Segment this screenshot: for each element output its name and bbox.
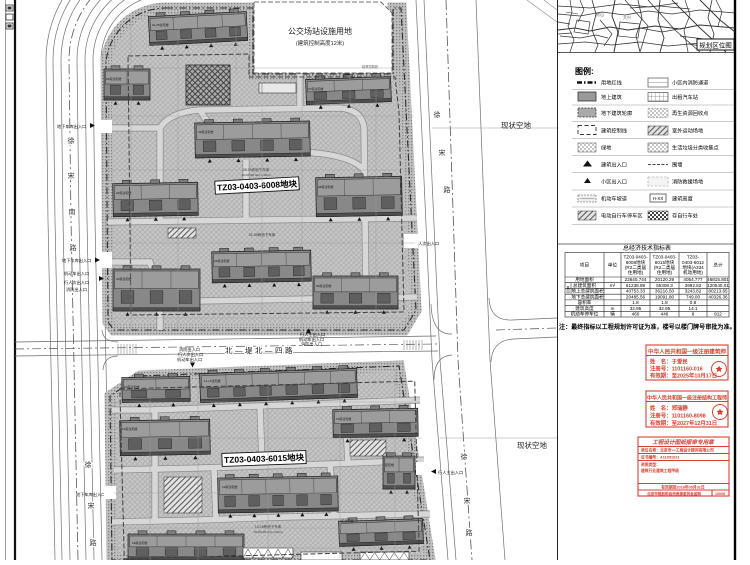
- svg-text:18栋住宅楼: 18栋住宅楼: [132, 540, 147, 545]
- svg-text:地上建筑: 地上建筑: [601, 93, 623, 101]
- svg-text:公交场站设施用地: 公交场站设施用地: [288, 26, 352, 36]
- svg-text:11-12住宅楼: 11-12住宅楼: [204, 378, 220, 383]
- svg-text:有效期：至2027年12月31日: 有效期：至2027年12月31日: [650, 419, 717, 427]
- svg-text:姓 名：于爱民: 姓 名：于爱民: [650, 358, 688, 366]
- svg-text:机动车坡道: 机动车坡道: [601, 195, 627, 203]
- svg-text:02栋住宅楼: 02栋住宅楼: [116, 190, 131, 195]
- svg-text:机动车停车位: 机动车停车位: [571, 311, 599, 318]
- svg-text:04栋住宅楼: 04栋住宅楼: [214, 258, 229, 263]
- svg-text:路: 路: [70, 243, 77, 252]
- svg-text:路: 路: [90, 538, 97, 547]
- svg-text:±0.00=35.3m(-1.00m): ±0.00=35.3m(-1.00m): [242, 173, 271, 177]
- svg-text:19091.80: 19091.80: [655, 294, 675, 299]
- svg-text:15栋住宅楼: 15栋住宅楼: [336, 416, 351, 421]
- svg-text:有效期至2018年05月31日: 有效期至2018年05月31日: [661, 485, 705, 490]
- svg-text:13栋住宅楼: 13栋住宅楼: [122, 426, 137, 431]
- svg-text:注：最终指标以工程规划许可证为准，楼号以楼门牌号审批为准。: 注：最终指标以工程规划许可证为准，楼号以楼门牌号审批为准。: [559, 323, 736, 331]
- svg-text:现状空地: 现状空地: [501, 120, 531, 130]
- svg-text:总计: 总计: [713, 261, 723, 268]
- svg-text:路: 路: [466, 528, 473, 537]
- svg-text:住用地): 住用地): [628, 269, 644, 276]
- svg-text:中华人民共和国一级注册结构工程师: 中华人民共和国一级注册结构工程师: [647, 395, 727, 402]
- svg-text:消防出入口: 消防出入口: [301, 341, 322, 348]
- svg-text:22640.744: 22640.744: [625, 277, 647, 282]
- svg-text:机动用地): 机动用地): [683, 269, 703, 276]
- svg-text:0.8: 0.8: [690, 300, 697, 305]
- svg-text:注册号：1101160-016: 注册号：1101160-016: [650, 365, 703, 373]
- svg-text:地下建筑轮廓: 地下建筑轮廓: [601, 109, 632, 117]
- svg-text:4054.777: 4054.777: [683, 277, 703, 282]
- svg-text:北—堤北—四路: 北—堤北—四路: [225, 345, 295, 355]
- svg-text:912: 912: [714, 312, 722, 317]
- svg-text:55308.3: 55308.3: [656, 283, 673, 288]
- svg-text:(建筑控制高度12米): (建筑控制高度12米): [296, 39, 344, 47]
- svg-text:住用地): 住用地): [657, 269, 673, 276]
- svg-text:32.95: 32.95: [630, 306, 642, 311]
- svg-text:宋: 宋: [88, 501, 95, 510]
- svg-text:宋: 宋: [464, 496, 471, 505]
- svg-text:单位: 单位: [608, 261, 618, 268]
- svg-text:行人主出入口: 行人主出入口: [438, 469, 463, 476]
- svg-text:小区出入口: 小区出入口: [601, 178, 627, 186]
- svg-text:446: 446: [661, 312, 669, 317]
- svg-text:建筑控制线: 建筑控制线: [362, 64, 379, 69]
- svg-text:中华人民共和国一级注册建筑师: 中华人民共和国一级注册建筑师: [648, 348, 727, 356]
- svg-text:40753.33: 40753.33: [626, 289, 646, 294]
- svg-text:小区内消防通道: 小区内消防通道: [672, 79, 708, 87]
- svg-text:20485.56: 20485.56: [626, 294, 646, 299]
- svg-text:6: 6: [692, 312, 695, 317]
- svg-text:证书编号：A11051023: 证书编号：A11051023: [641, 455, 679, 460]
- svg-text:南: 南: [69, 207, 76, 216]
- svg-text:01-05住宅楼: 01-05住宅楼: [152, 22, 169, 27]
- svg-text:大兴: 大兴: [623, 14, 631, 20]
- svg-text:06栋住宅楼: 06栋住宅楼: [106, 76, 121, 81]
- svg-text:单位名称：北京市××工程设计顾问有限公司: 单位名称：北京市××工程设计顾问有限公司: [641, 448, 714, 453]
- svg-text:宋: 宋: [439, 148, 446, 157]
- svg-text:总经济技术指标表: 总经济技术指标表: [623, 244, 671, 252]
- svg-text:机动车出入口: 机动车出入口: [177, 356, 202, 363]
- svg-text:资质类型：: 资质类型：: [641, 462, 660, 467]
- svg-text:路: 路: [444, 185, 451, 194]
- svg-text:32.95: 32.95: [659, 306, 671, 311]
- svg-text:徐: 徐: [461, 452, 468, 461]
- svg-text:消防救援场地: 消防救援场地: [672, 178, 703, 186]
- svg-text:宋: 宋: [68, 171, 75, 180]
- svg-text:14.1: 14.1: [689, 306, 698, 311]
- svg-text:10栋住宅楼: 10栋住宅楼: [124, 384, 139, 389]
- svg-text:电动自行车停车区: 电动自行车停车区: [601, 212, 643, 220]
- svg-text:徐: 徐: [85, 460, 92, 469]
- svg-text:17栋住宅楼: 17栋住宅楼: [338, 518, 353, 523]
- svg-text:出租汽车站: 出租汽车站: [672, 93, 698, 101]
- svg-text:01-09栋地下车库: 01-09栋地下车库: [249, 232, 276, 237]
- svg-text:围墙: 围墙: [672, 161, 682, 169]
- svg-text:配套楼: 配套楼: [385, 462, 394, 467]
- svg-text:辆: 辆: [610, 311, 615, 318]
- svg-text:存自行车处: 存自行车处: [672, 212, 698, 220]
- svg-text:3243.82: 3243.82: [685, 289, 702, 294]
- svg-text:1.8: 1.8: [661, 300, 668, 305]
- svg-text:61238.89: 61238.89: [626, 283, 646, 288]
- svg-text:姓 名：郑瑞静: 姓 名：郑瑞静: [650, 404, 688, 412]
- svg-text:机动车出入口: 机动车出入口: [64, 270, 89, 277]
- svg-text:1.8: 1.8: [632, 300, 639, 305]
- svg-text:40326.36: 40326.36: [708, 294, 728, 299]
- svg-text:m²: m²: [610, 283, 616, 288]
- svg-text:现状空地: 现状空地: [517, 440, 547, 450]
- svg-text:16栋住宅楼: 16栋住宅楼: [222, 484, 237, 489]
- svg-text:房山: 房山: [596, 11, 604, 17]
- svg-text:徐: 徐: [68, 136, 75, 145]
- svg-text:建筑出入口: 建筑出入口: [601, 161, 627, 169]
- svg-text:地下车库出入口: 地下车库出入口: [76, 491, 105, 498]
- svg-text:生活垃圾分类收集点: 生活垃圾分类收集点: [672, 144, 719, 152]
- svg-text:工程设计图纸报审专用章: 工程设计图纸报审专用章: [652, 439, 715, 446]
- svg-text:36216.50: 36216.50: [655, 289, 675, 294]
- svg-text:120540.01: 120540.01: [707, 283, 729, 288]
- svg-text:749.00: 749.00: [686, 294, 700, 299]
- svg-text:01栋住宅楼: 01栋住宅楼: [116, 276, 131, 281]
- svg-text:建筑控制线: 建筑控制线: [601, 127, 627, 135]
- svg-text:建筑行业建筑工程甲级: 建筑行业建筑工程甲级: [640, 468, 679, 473]
- svg-text:20120.29: 20120.29: [655, 277, 675, 282]
- svg-text:H-XX: H-XX: [653, 196, 664, 201]
- svg-text:地下车库出入口: 地下车库出入口: [62, 257, 91, 264]
- svg-text:10008: 10008: [715, 492, 725, 496]
- svg-text:规划区位图: 规划区位图: [699, 41, 732, 50]
- svg-text:室外运动场地: 室外运动场地: [672, 127, 703, 135]
- svg-text:建筑高度: 建筑高度: [672, 195, 693, 203]
- svg-text:08-09栋地下车库: 08-09栋地下车库: [243, 167, 270, 172]
- svg-text:3992.82: 3992.82: [685, 283, 702, 288]
- svg-text:07栋住宅楼: 07栋住宅楼: [308, 86, 323, 91]
- svg-text:消防出入口: 消防出入口: [66, 286, 87, 293]
- svg-text:注册号：1101160-8098: 注册号：1101160-8098: [650, 412, 706, 420]
- svg-text:80213.65: 80213.65: [708, 289, 728, 294]
- svg-text:46815.801: 46815.801: [707, 277, 729, 282]
- svg-text:03栋住宅楼: 03栋住宅楼: [198, 129, 213, 134]
- svg-text:460: 460: [632, 312, 640, 317]
- svg-text:用地红线: 用地红线: [601, 79, 622, 87]
- svg-text:北京市规划和自然资源委员会监制: 北京市规划和自然资源委员会监制: [647, 491, 701, 496]
- svg-text:绿地: 绿地: [601, 144, 611, 152]
- svg-text:09栋住宅楼: 09栋住宅楼: [316, 283, 331, 288]
- svg-text:m: m: [611, 306, 615, 311]
- svg-text:再生资源回收点: 再生资源回收点: [672, 109, 708, 117]
- svg-text:中: 中: [566, 289, 570, 294]
- svg-text:行人次出入口: 行人次出入口: [64, 279, 89, 286]
- svg-text:08栋住宅楼: 08栋住宅楼: [318, 184, 333, 189]
- svg-text:图例:: 图例:: [575, 66, 594, 76]
- svg-text:10-18栋地下车库: 10-18栋地下车库: [255, 524, 282, 529]
- svg-text:地下车库出入口: 地下车库出入口: [57, 123, 86, 130]
- svg-text:徐: 徐: [434, 110, 441, 119]
- svg-text:有效期：至2025年10月17日: 有效期：至2025年10月17日: [650, 372, 717, 380]
